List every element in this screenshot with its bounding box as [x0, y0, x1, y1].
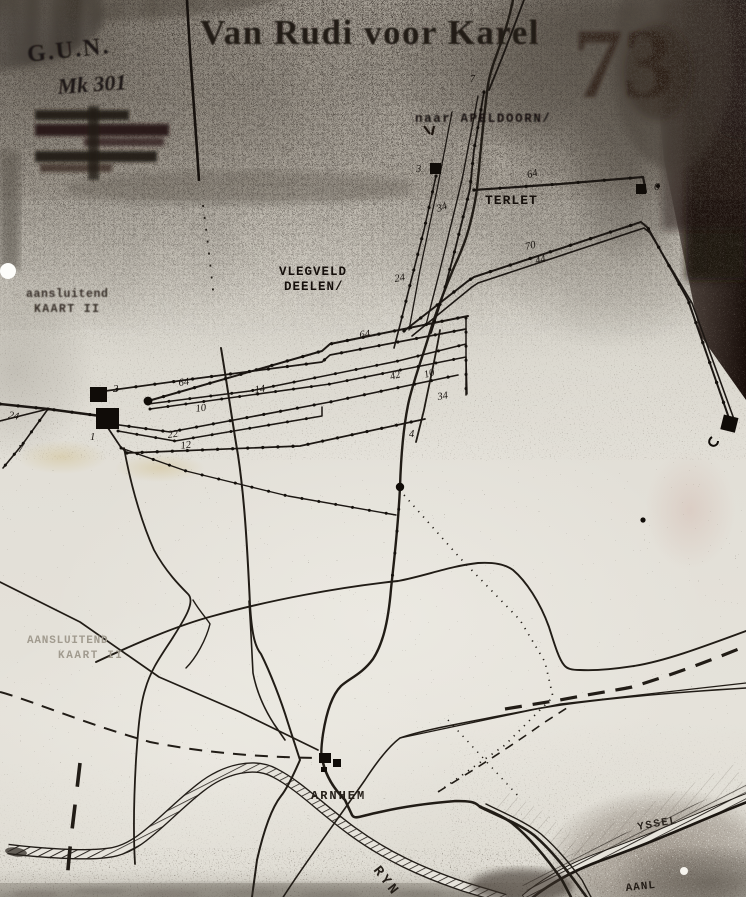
svg-text:1: 1 — [90, 432, 95, 443]
svg-text:2: 2 — [113, 384, 119, 395]
svg-text:KAART II: KAART II — [58, 650, 124, 662]
svg-text:VLEGVELD: VLEGVELD — [279, 265, 347, 279]
svg-text:3: 3 — [415, 164, 421, 175]
svg-text:DEELEN/: DEELEN/ — [284, 280, 344, 294]
svg-text:AANSLUITEND: AANSLUITEND — [27, 635, 108, 647]
svg-text:naar APELDOORN/: naar APELDOORN/ — [415, 112, 552, 126]
svg-text:aansluitend: aansluitend — [26, 288, 109, 301]
svg-text:7: 7 — [18, 444, 24, 455]
svg-text:Van Rudi voor Karel: Van Rudi voor Karel — [200, 13, 540, 52]
svg-text:Mk 301: Mk 301 — [56, 69, 128, 99]
svg-text:4: 4 — [409, 429, 415, 440]
svg-text:6: 6 — [654, 181, 660, 193]
svg-text:TERLET: TERLET — [485, 193, 538, 208]
svg-text:KAART II: KAART II — [34, 303, 100, 316]
svg-text:ARNHEM: ARNHEM — [311, 789, 366, 803]
